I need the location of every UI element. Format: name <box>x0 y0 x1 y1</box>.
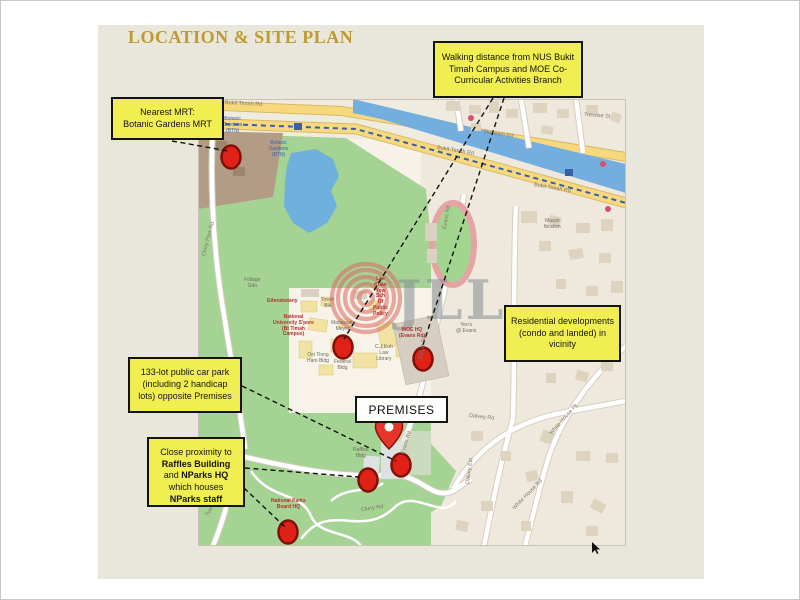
bus-stop-icon <box>600 161 606 167</box>
callout-residential: Residential developments (condo and land… <box>504 305 621 362</box>
mrt-station-icon <box>294 123 302 130</box>
callout-proximity: Close proximity to Raffles Building and … <box>147 437 245 507</box>
callout-nearest-mrt: Nearest MRT: Botanic Gardens MRT <box>111 97 224 140</box>
premises-label-box: PREMISES <box>355 396 448 423</box>
marker-raffles-building <box>359 469 378 492</box>
site-map: JLL <box>1 1 800 600</box>
callout-walking-distance: Walking distance from NUS Bukit Timah Ca… <box>433 41 583 98</box>
marker-nus-campus <box>334 336 353 359</box>
marker-moe-hq <box>414 348 433 371</box>
marker-mrt <box>222 146 241 169</box>
slide-screenshot: LOCATION & SITE PLAN <box>0 0 800 600</box>
marker-car-park <box>392 454 411 477</box>
bus-stop-icon <box>605 206 611 212</box>
mrt-station-icon <box>565 169 573 176</box>
bus-stop-icon <box>468 115 474 121</box>
callout-car-park: 133-lot public car park (including 2 han… <box>128 357 242 413</box>
jll-watermark-text: JLL <box>392 268 507 332</box>
